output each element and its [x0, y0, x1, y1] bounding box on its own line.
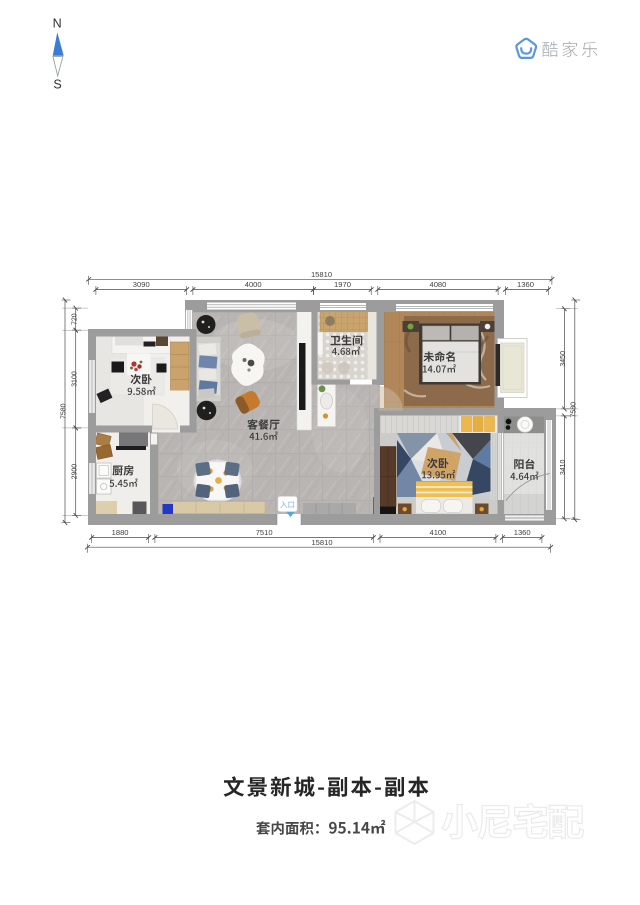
- svg-text:3450: 3450: [560, 351, 567, 367]
- svg-text:7580: 7580: [61, 403, 68, 419]
- svg-text:4100: 4100: [429, 528, 446, 537]
- svg-text:4080: 4080: [429, 280, 446, 289]
- svg-text:15810: 15810: [311, 270, 332, 279]
- svg-text:1360: 1360: [514, 528, 531, 537]
- svg-text:3090: 3090: [133, 280, 150, 289]
- svg-text:3410: 3410: [560, 459, 567, 475]
- svg-text:N: N: [53, 17, 62, 31]
- svg-text:1360: 1360: [517, 280, 534, 289]
- svg-text:7580: 7580: [570, 402, 577, 418]
- svg-text:S: S: [53, 77, 61, 91]
- svg-text:720: 720: [71, 313, 78, 325]
- svg-text:1970: 1970: [334, 280, 351, 289]
- svg-text:2900: 2900: [71, 464, 78, 480]
- svg-text:7510: 7510: [256, 528, 273, 537]
- svg-text:4000: 4000: [245, 280, 262, 289]
- svg-text:3100: 3100: [71, 371, 78, 387]
- svg-text:15810: 15810: [311, 538, 332, 547]
- svg-text:1880: 1880: [112, 528, 129, 537]
